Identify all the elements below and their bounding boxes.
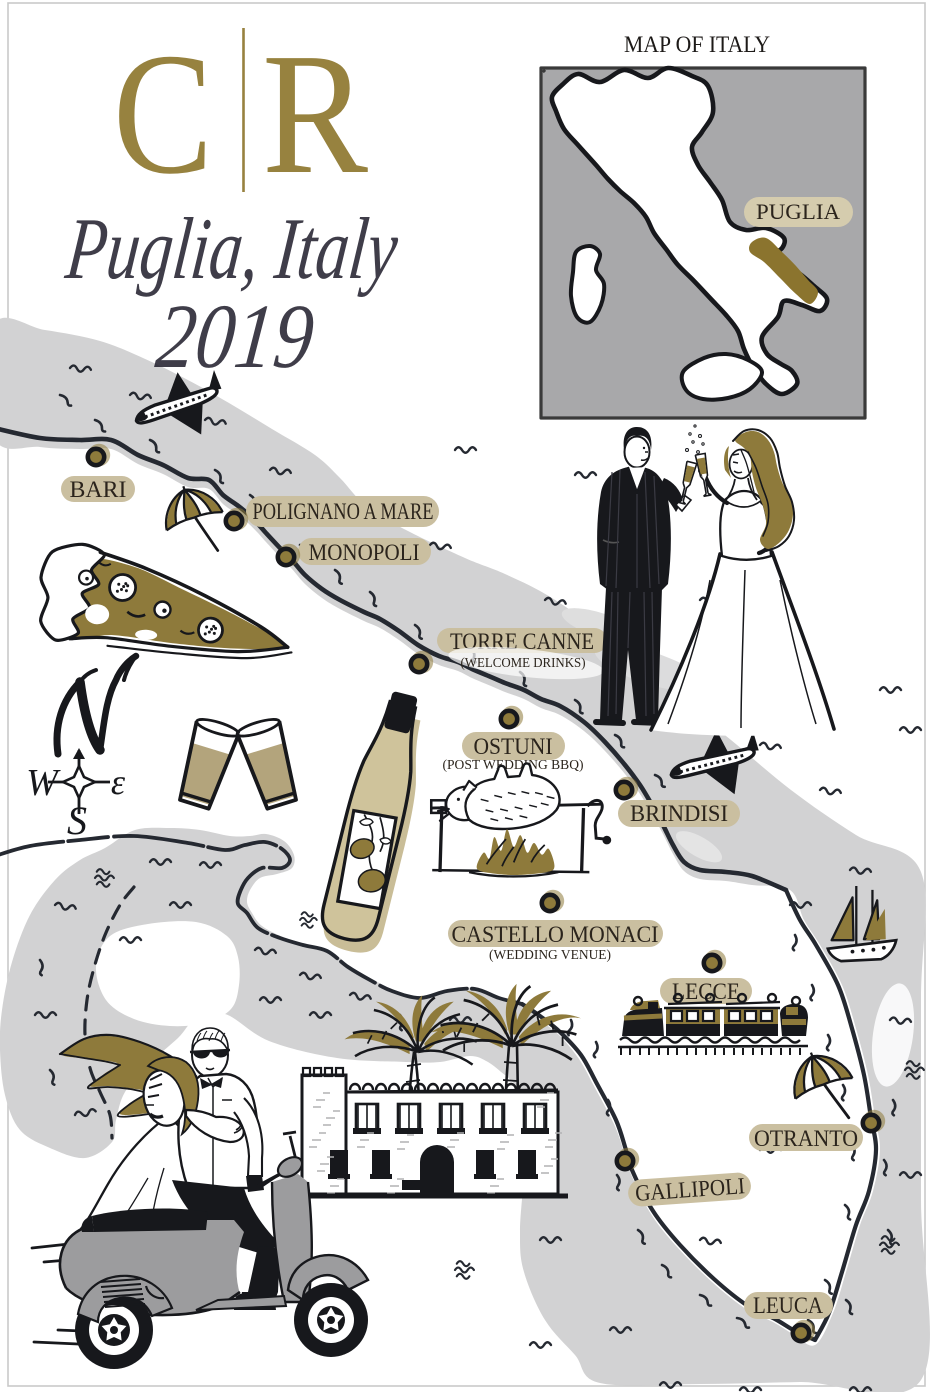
svg-text:S: S (67, 798, 87, 843)
svg-text:POLIGNANO A MARE: POLIGNANO A MARE (253, 499, 434, 524)
svg-text:R: R (262, 17, 368, 210)
svg-text:CASTELLO MONACI: CASTELLO MONACI (452, 922, 659, 947)
svg-text:W: W (26, 762, 61, 804)
svg-text:PUGLIA: PUGLIA (756, 199, 840, 224)
svg-text:LEUCA: LEUCA (753, 1293, 823, 1318)
svg-text:(WELCOME DRINKS): (WELCOME DRINKS) (461, 655, 586, 670)
svg-text:BARI: BARI (70, 477, 127, 502)
svg-text:Puglia, Italy: Puglia, Italy (61, 200, 403, 298)
svg-text:MONOPOLI: MONOPOLI (309, 540, 420, 565)
svg-text:(WEDDING VENUE): (WEDDING VENUE) (489, 947, 611, 962)
svg-text:(POST WEDDING BBQ): (POST WEDDING BBQ) (443, 757, 584, 772)
svg-text:ε: ε (111, 762, 126, 802)
svg-text:C: C (113, 17, 213, 210)
svg-text:2019: 2019 (152, 285, 319, 387)
svg-text:OTRANTO: OTRANTO (754, 1126, 858, 1151)
svg-text:OSTUNI: OSTUNI (474, 734, 553, 759)
svg-text:MAP OF ITALY: MAP OF ITALY (624, 32, 770, 57)
svg-text:BRINDISI: BRINDISI (630, 801, 728, 826)
